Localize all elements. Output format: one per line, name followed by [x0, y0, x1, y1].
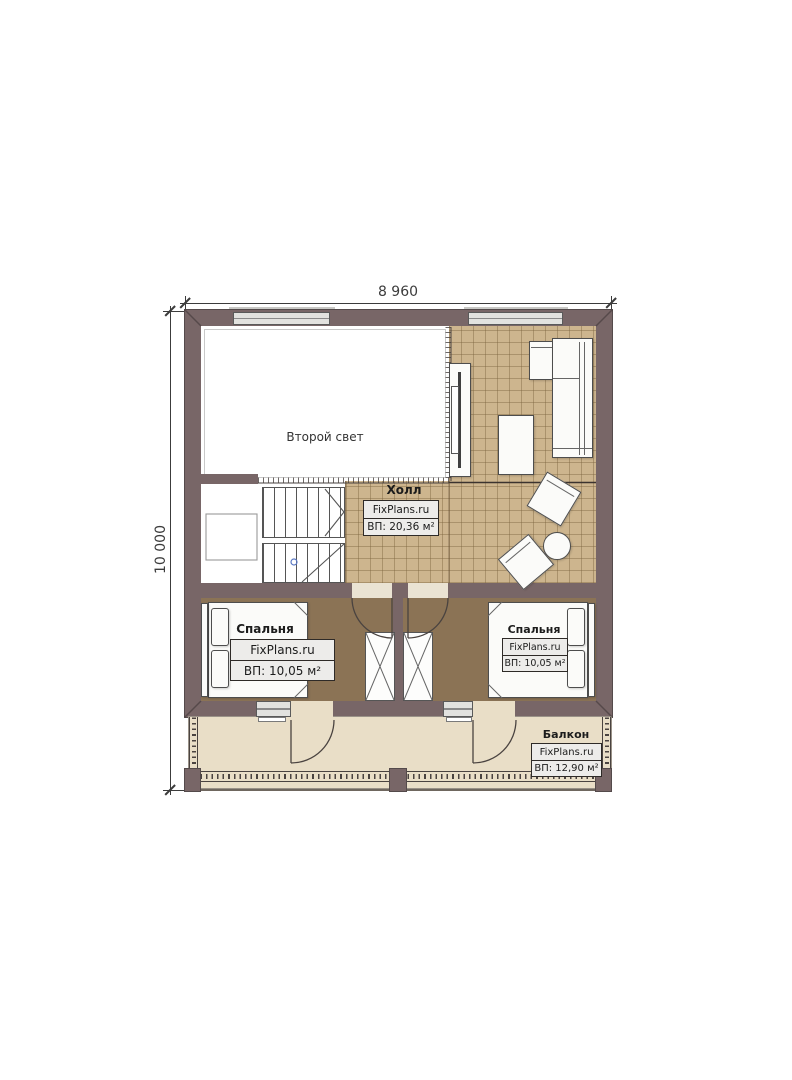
doors-and-details-linework — [0, 0, 792, 1080]
floor-plan-sheet: 8 960 10 000 — [0, 0, 792, 1080]
